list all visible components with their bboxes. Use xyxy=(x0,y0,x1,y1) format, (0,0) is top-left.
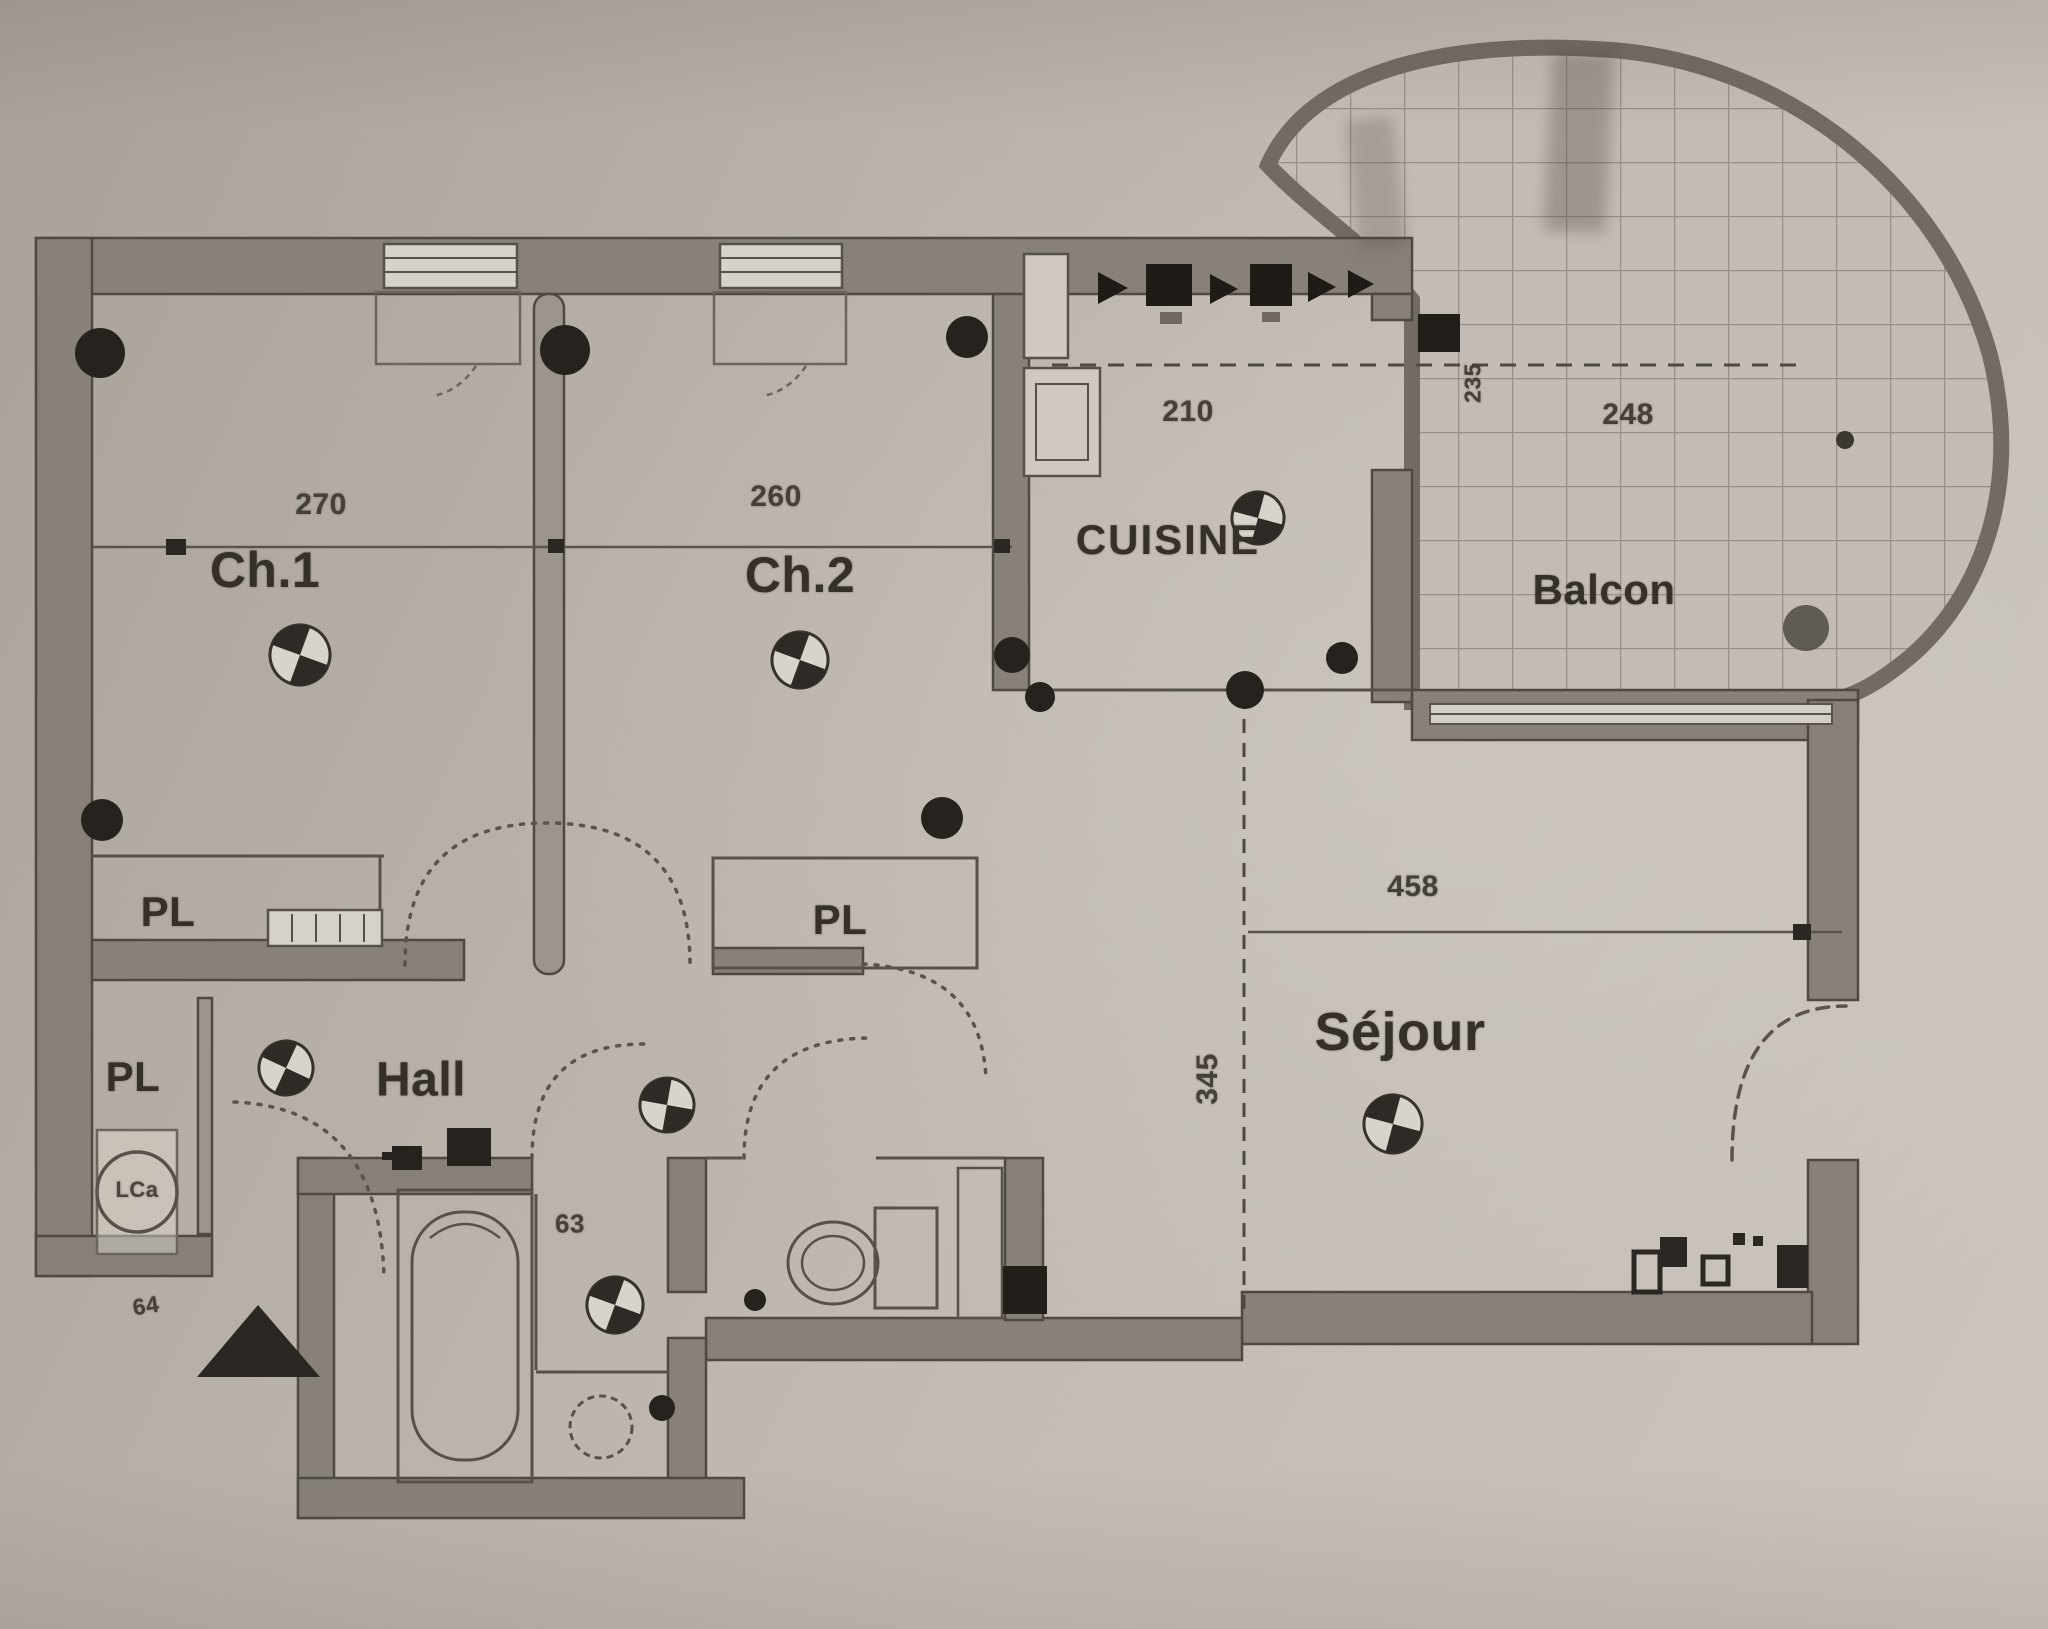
socket-row-icons xyxy=(1634,1233,1808,1292)
pl-ch1-sliding-door-icon xyxy=(268,910,382,946)
balcony-dot xyxy=(1836,431,1854,449)
wall-sejour-right-b xyxy=(1808,1160,1858,1344)
room-label-pl-ch2: PL xyxy=(813,896,868,944)
room-label-sejour: Séjour xyxy=(1314,1001,1485,1063)
light-fixture-icon-ch2 xyxy=(764,624,836,696)
dim-label-210: 210 xyxy=(1162,395,1214,429)
room-label-pl-ch1: PL xyxy=(141,888,196,936)
room-label-pl-entry: PL xyxy=(106,1053,161,1101)
window-ch2-icon xyxy=(714,244,846,396)
window-ch1-icon xyxy=(376,244,520,396)
wall-bath-left xyxy=(298,1158,334,1518)
room-label-cuisine: CUISINE xyxy=(1076,516,1260,564)
dim-label-235: 235 xyxy=(1460,363,1487,403)
wall-pl-entry-divider xyxy=(198,998,212,1234)
dim-label-260: 260 xyxy=(750,480,802,514)
room-label-ch1: Ch.1 xyxy=(210,541,320,599)
room-label-balcon: Balcon xyxy=(1532,566,1675,614)
wall-end-cap-wc xyxy=(1003,1266,1047,1314)
room-label-hall: Hall xyxy=(376,1053,466,1108)
light-fixture-icon-ch1 xyxy=(262,617,339,694)
water-heater-label: LCa xyxy=(115,1177,158,1203)
wall-bath-right-a xyxy=(668,1158,706,1292)
wall-end-cap xyxy=(1418,314,1460,352)
door-arc-pl-ch2 xyxy=(863,964,986,1080)
wall-kitchen-right-b xyxy=(1372,470,1412,702)
room-label-ch2: Ch.2 xyxy=(745,546,855,604)
light-fixture-icon-sejour xyxy=(1357,1088,1428,1159)
wall-sejour-right-a xyxy=(1808,700,1858,1000)
floor-plan-drawing xyxy=(0,0,2048,1629)
wall-left xyxy=(36,238,92,1276)
dim-label-458: 458 xyxy=(1387,870,1439,904)
toilet-icon xyxy=(788,1208,937,1308)
wall-partition-ch1-ch2 xyxy=(534,294,564,974)
light-fixture-icon-bath xyxy=(579,1269,651,1341)
window-sejour-balcony-icon xyxy=(1430,704,1832,724)
dim-label-345: 345 xyxy=(1191,1053,1225,1105)
light-fixture-icon-hall-2 xyxy=(636,1074,699,1137)
outlet-dots xyxy=(75,316,1358,1311)
wc-door-leaf-icon xyxy=(958,1168,1002,1318)
bathtub-icon xyxy=(398,1190,532,1482)
wall-sejour-bottom xyxy=(1242,1292,1812,1344)
balcony-drain-icon xyxy=(1783,605,1829,651)
door-arc-bathroom xyxy=(532,1044,644,1158)
dim-label-63: 63 xyxy=(555,1209,585,1240)
partition-lines xyxy=(92,690,1412,1372)
dim-label-270: 270 xyxy=(295,488,347,522)
washbasin-icon xyxy=(570,1395,675,1458)
floor-plan-scan: Ch.1 Ch.2 CUISINE Balcon Séjour Hall PL … xyxy=(0,0,2048,1629)
door-arc-sejour-balcony xyxy=(1732,1006,1846,1160)
wall-kitchen-right-a xyxy=(1372,294,1412,320)
wall-wc-bottom xyxy=(706,1318,1242,1360)
wall-bath-bottom xyxy=(298,1478,744,1518)
dim-label-248: 248 xyxy=(1602,398,1654,432)
dim-label-64: 64 xyxy=(131,1291,161,1322)
wall-pl-ch2-band xyxy=(713,948,863,974)
light-fixture-icon-hall-1 xyxy=(250,1032,322,1104)
door-arc-wc xyxy=(744,1038,872,1158)
